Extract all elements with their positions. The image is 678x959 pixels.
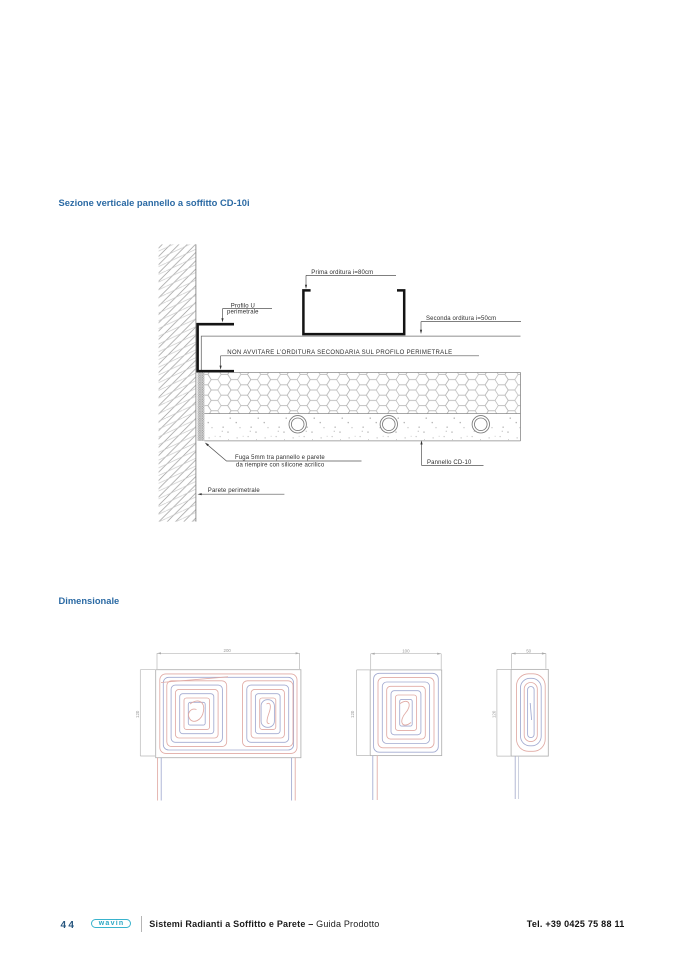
svg-text:120: 120: [135, 710, 140, 718]
svg-text:Seconda orditura i=50cm: Seconda orditura i=50cm: [426, 316, 496, 322]
svg-text:Parete perimetrale: Parete perimetrale: [208, 488, 261, 494]
svg-text:Profilo U: Profilo U: [231, 303, 255, 309]
svg-text:NON AVVITARE L’ORDITURA SECOND: NON AVVITARE L’ORDITURA SECONDARIA SUL P…: [227, 350, 452, 356]
svg-text:100: 100: [402, 649, 410, 654]
svg-text:perimetrale: perimetrale: [227, 310, 259, 316]
svg-text:Prima orditura i=80cm: Prima orditura i=80cm: [311, 270, 373, 276]
svg-text:da riempire con silicone acril: da riempire con silicone acrilico: [236, 463, 325, 469]
svg-text:120: 120: [350, 710, 355, 718]
svg-text:Pannello CD-10: Pannello CD-10: [427, 460, 472, 466]
svg-text:120: 120: [491, 710, 496, 718]
svg-text:50: 50: [526, 648, 531, 653]
svg-text:Fuga 5mm tra pannello e parete: Fuga 5mm tra pannello e parete: [235, 455, 325, 461]
svg-text:200: 200: [224, 648, 232, 653]
